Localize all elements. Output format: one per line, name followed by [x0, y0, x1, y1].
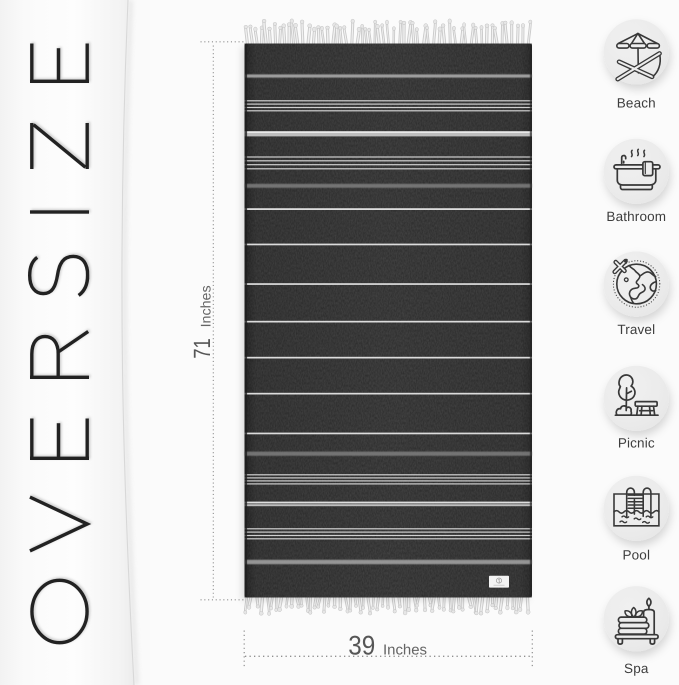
svg-text:Travel: Travel	[617, 322, 655, 337]
svg-text:Inches: Inches	[383, 643, 427, 659]
svg-text:Bathroom: Bathroom	[606, 209, 666, 224]
svg-text:Inches: Inches	[198, 285, 214, 327]
svg-text:Beach: Beach	[617, 96, 656, 111]
svg-text:Picnic: Picnic	[618, 436, 655, 451]
svg-text:71: 71	[189, 338, 215, 359]
svg-text:39: 39	[348, 631, 375, 661]
svg-text:Spa: Spa	[624, 661, 649, 676]
svg-text:Pool: Pool	[622, 548, 650, 563]
